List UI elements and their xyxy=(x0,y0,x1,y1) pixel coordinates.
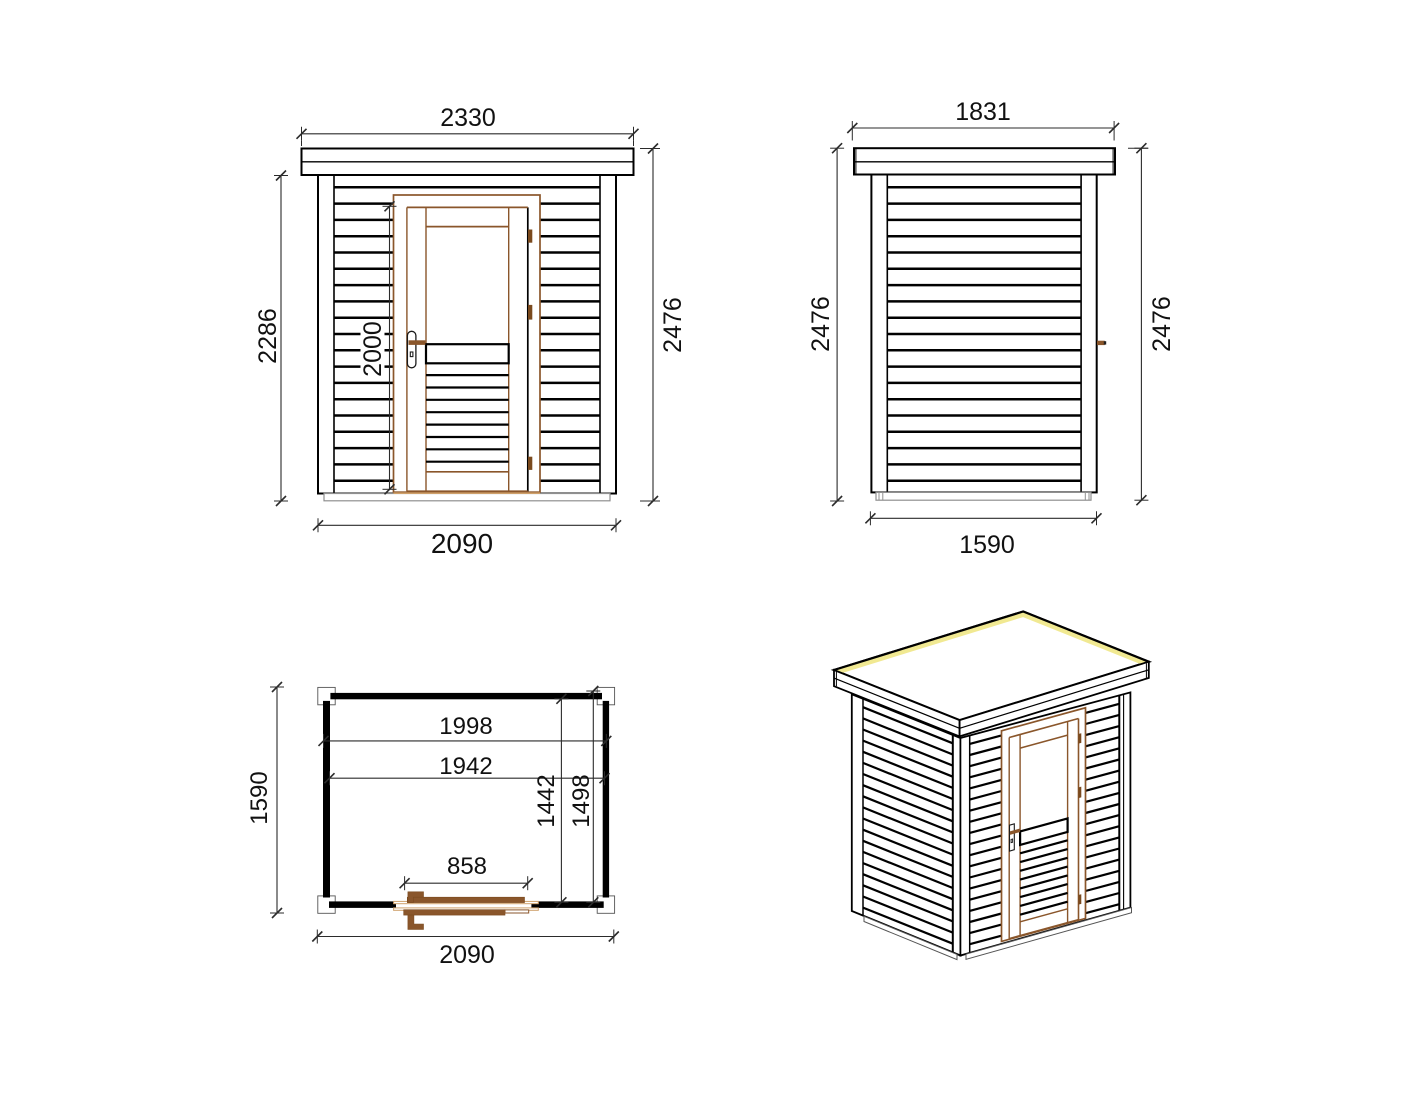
svg-text:1831: 1831 xyxy=(955,98,1011,126)
svg-text:2286: 2286 xyxy=(254,308,282,364)
svg-text:2000: 2000 xyxy=(359,321,387,377)
svg-text:1590: 1590 xyxy=(959,531,1015,559)
svg-text:2476: 2476 xyxy=(659,297,687,353)
svg-text:1498: 1498 xyxy=(568,774,595,827)
svg-text:2090: 2090 xyxy=(431,528,493,559)
svg-text:1590: 1590 xyxy=(246,771,273,824)
svg-text:2330: 2330 xyxy=(440,104,496,132)
svg-text:1998: 1998 xyxy=(439,713,492,740)
svg-text:858: 858 xyxy=(447,853,487,880)
svg-text:1442: 1442 xyxy=(533,774,560,827)
svg-text:2476: 2476 xyxy=(807,296,835,352)
svg-text:2476: 2476 xyxy=(1148,296,1176,352)
svg-text:1942: 1942 xyxy=(439,753,492,780)
svg-text:2090: 2090 xyxy=(439,941,495,969)
